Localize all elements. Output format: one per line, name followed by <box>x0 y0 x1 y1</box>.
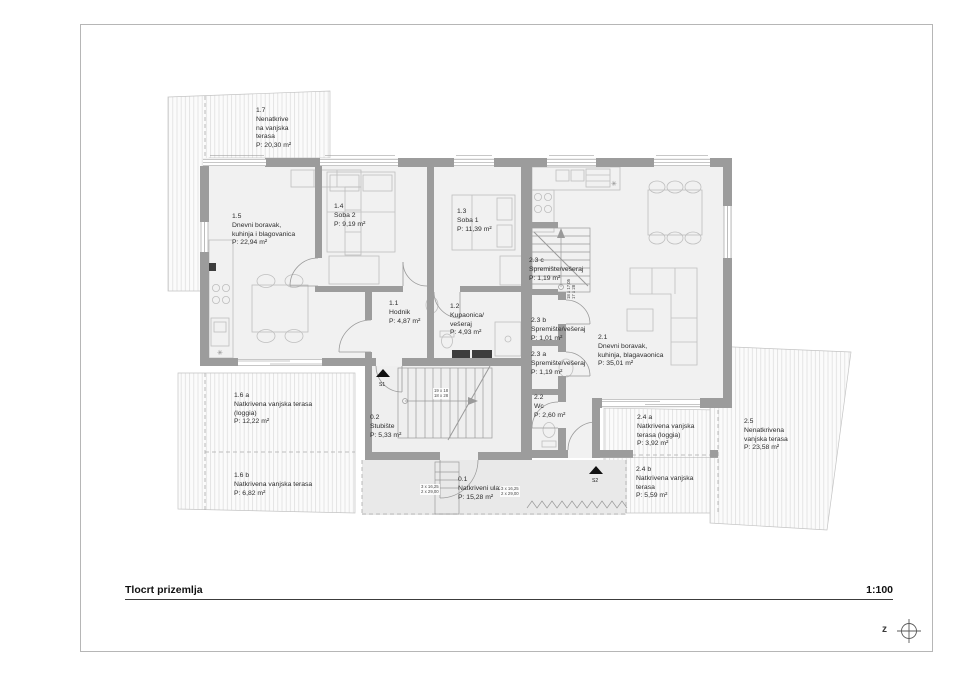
room-label-1-5: 1.5Dnevni boravak, kuhinja i blagovanica… <box>232 213 295 248</box>
compass-icon <box>897 619 921 643</box>
light-fixture-icon: ✳ <box>611 180 617 188</box>
room-label-1-3: 1.3Soba 1 P: 11,39 m² <box>457 208 492 234</box>
light-fixture-icon: ✳ <box>217 349 223 357</box>
room-label-1-2: 1.2Kupaonica/ vešerajP: 4,93 m² <box>450 303 484 338</box>
steps-dimension-left: 3 x 16,25 2 x 29,00 <box>420 484 440 495</box>
room-label-1-4: 1.4Soba 2 P: 9,19 m² <box>334 203 365 229</box>
room-label-1-6b: 1.6 bNatkrivena vanjska terasa P: 6,82 m… <box>234 472 312 498</box>
drawing-scale: 1:100 <box>840 584 893 596</box>
steps-dimension-right: 3 x 16,25 2 x 29,00 <box>500 486 520 497</box>
room-label-2-1: 2.1Dnevni boravak, kuhinja, blagavaonica… <box>598 334 663 369</box>
room-label-2-4a: 2.4 aNatkrivena vanjska terasa (loggia)P… <box>637 414 694 449</box>
floor-plan-drawing: S1 S2 ✳ ✳ <box>0 0 960 679</box>
room-label-2-4b: 2.4 bNatkrivena vanjska terasaP: 5,59 m² <box>636 466 693 501</box>
room-label-2-3b: 2.3 bSpremište/vešeraj P: 1,01 m² <box>531 317 585 343</box>
entrance-label-s2: S2 <box>592 478 598 484</box>
room-label-0-2: 0.2Stubište P: 5,33 m² <box>370 414 401 440</box>
title-rule <box>125 599 893 600</box>
entrance-label-s1: S1 <box>379 382 385 388</box>
electrical-panel <box>209 263 216 271</box>
drawing-title: Tlocrt prizemlja <box>125 584 203 596</box>
stair-dimension-upper: 18 x 17,05 17 x 28 <box>566 278 577 300</box>
room-label-2-2: 2.2Wc P: 2,60 m² <box>534 394 565 420</box>
room-label-1-6a: 1.6 aNatkrivena vanjska terasa (loggia)P… <box>234 392 312 427</box>
room-label-0-1: 0.1Natkriveni ulaz P: 15,28 m² <box>458 476 503 502</box>
room-label-1-7: 1.7Nenatkrive na vanjskaterasa P: 20,30 … <box>256 107 291 151</box>
room-label-2-3a: 2.3 aSpremište/vešeraj P: 1,19 m² <box>531 351 585 377</box>
room-label-2-5: 2.5Nenatkrivena vanjska terasaP: 23,58 m… <box>744 418 788 453</box>
stair-dimension-main: 19 x 18 18 x 28 <box>433 388 449 399</box>
room-label-1-1: 1.1Hodnik P: 4,87 m² <box>389 300 420 326</box>
compass-letter: z <box>882 624 887 635</box>
drawing-sheet: S1 S2 ✳ ✳ 1.7Nenatkrive na vanjskaterasa… <box>0 0 960 679</box>
